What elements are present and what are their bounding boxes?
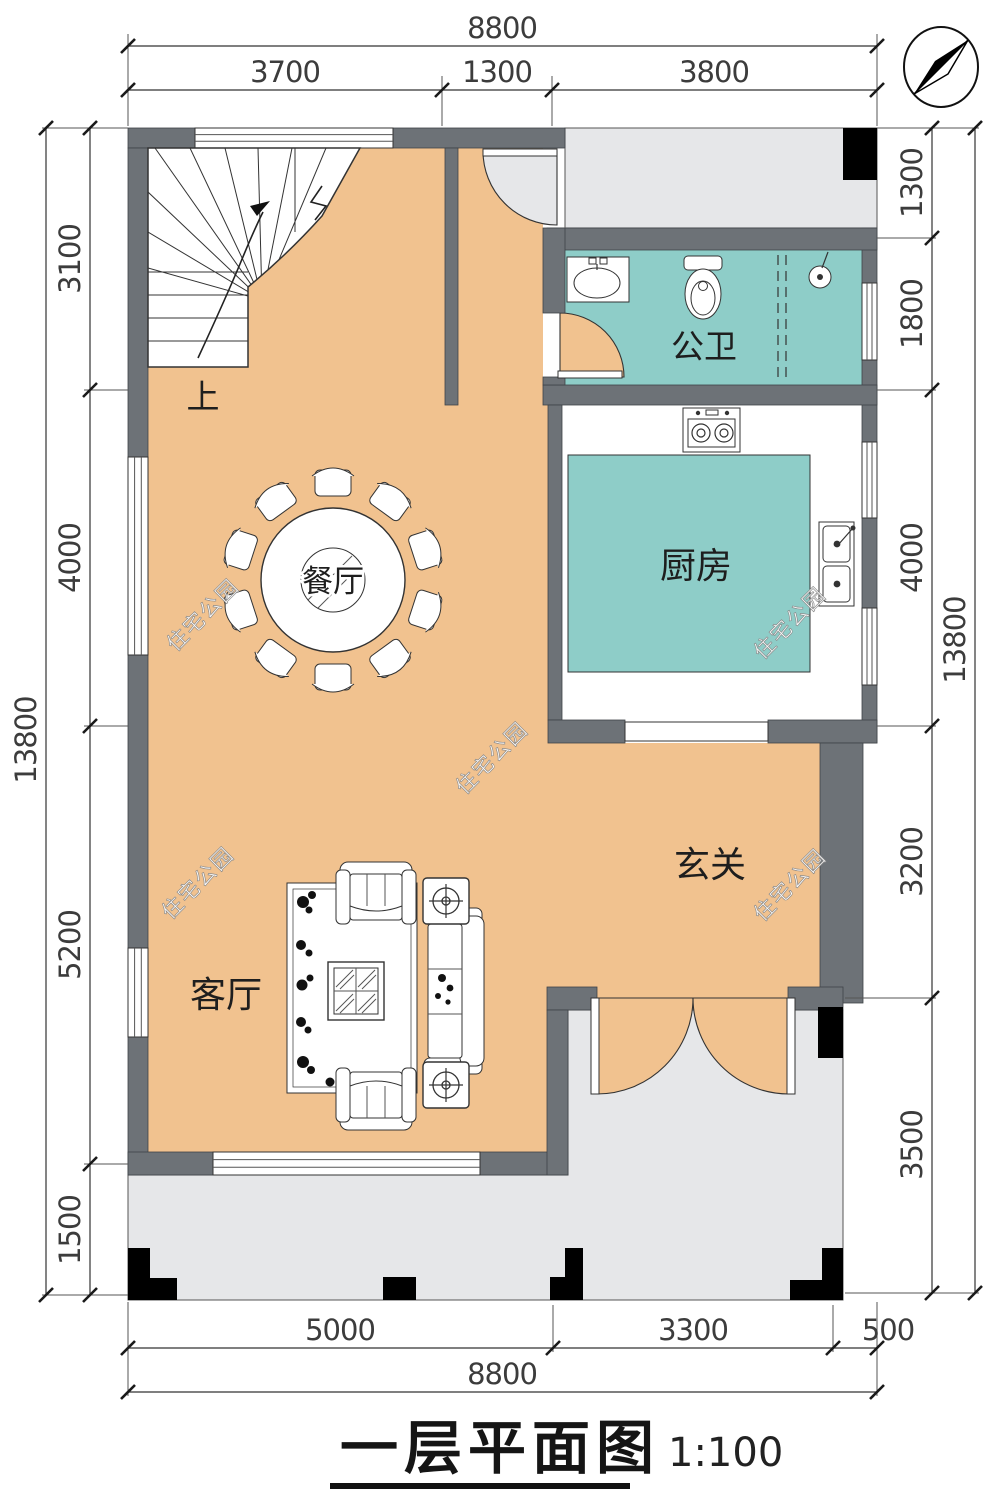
dim-left-seg-3: 5200 <box>53 910 87 980</box>
toilet-icon <box>684 256 722 319</box>
rear-terrace <box>565 128 877 228</box>
dim-top-seg-1: 3700 <box>250 55 320 89</box>
dim-left-seg-1: 3100 <box>53 224 87 294</box>
kitchen-opening <box>625 722 768 741</box>
window-kitchen-right-1 <box>862 442 877 518</box>
armchair-bottom <box>336 1068 416 1130</box>
dim-top-overall: 8800 <box>467 11 537 45</box>
entry-door-left-leaf <box>591 998 599 1094</box>
north-arrow-icon <box>904 27 978 107</box>
window-kitchen-right-2 <box>862 608 877 685</box>
dim-right-seg-2: 1800 <box>895 279 929 349</box>
window-dining-left <box>128 457 148 655</box>
window-living-left <box>128 948 148 1037</box>
side-table-lamp-top <box>423 878 469 924</box>
dim-left-seg-4: 1500 <box>53 1195 87 1265</box>
window-living-bottom <box>213 1152 480 1175</box>
stair-up-label: 上 <box>187 380 220 416</box>
coffee-table <box>328 962 384 1020</box>
entry-corner-column <box>818 1007 843 1058</box>
dining-label: 餐厅 <box>302 564 364 599</box>
dim-right-seg-3: 4000 <box>895 523 929 593</box>
sofa-set <box>287 862 484 1130</box>
page-title: 一层平面图 <box>340 1416 660 1481</box>
dim-top-seg-2: 1300 <box>462 55 532 89</box>
title-scale: 1:100 <box>668 1430 783 1476</box>
title-underline <box>330 1483 630 1489</box>
dim-right-seg-1: 1300 <box>895 148 929 218</box>
dim-bottom-overall: 8800 <box>467 1357 537 1391</box>
entry-label: 玄关 <box>674 845 746 885</box>
bathroom-label: 公卫 <box>671 330 737 366</box>
bathroom-door-leaf <box>558 371 622 378</box>
dim-bottom-seg-2: 3300 <box>658 1313 728 1347</box>
side-table-lamp-bottom <box>423 1062 469 1108</box>
window-bathroom-right <box>862 283 877 360</box>
dim-top-seg-3: 3800 <box>679 55 749 89</box>
dim-bottom: 5000 3300 500 8800 <box>121 1302 914 1399</box>
dim-top: 8800 3700 1300 3800 <box>121 11 884 126</box>
sink-icon <box>567 257 629 302</box>
floor-plan-page: 公卫 厨房 餐厅 玄关 客厅 上 住宅公园 住宅公园 住宅公园 住宅公园 住宅公… <box>0 0 996 1500</box>
window-stairs-top <box>195 128 393 148</box>
terrace-corner-column <box>843 128 877 180</box>
dim-left-overall: 13800 <box>9 696 43 783</box>
stove-icon <box>683 408 740 452</box>
dim-right-overall: 13800 <box>938 596 972 683</box>
dim-right-seg-5: 3500 <box>895 1110 929 1180</box>
dim-left: 13800 3100 4000 5200 1500 <box>9 121 128 1302</box>
armchair-top <box>336 862 416 924</box>
title-block: 一层平面图 1:100 <box>330 1416 783 1489</box>
floor-plan-drawing: 公卫 厨房 餐厅 玄关 客厅 上 住宅公园 住宅公园 住宅公园 住宅公园 住宅公… <box>0 0 996 1500</box>
dim-left-seg-2: 4000 <box>53 523 87 593</box>
dim-bottom-seg-1: 5000 <box>305 1313 375 1347</box>
living-label: 客厅 <box>190 975 262 1015</box>
sofa-right <box>424 908 484 1074</box>
kitchen-label: 厨房 <box>660 546 732 586</box>
terrace-door-leaf <box>483 149 557 156</box>
porch-mid-column <box>383 1277 416 1300</box>
entry-door-right-leaf <box>787 998 795 1094</box>
dim-right-seg-4: 3200 <box>895 827 929 897</box>
dim-bottom-seg-3: 500 <box>862 1313 914 1347</box>
